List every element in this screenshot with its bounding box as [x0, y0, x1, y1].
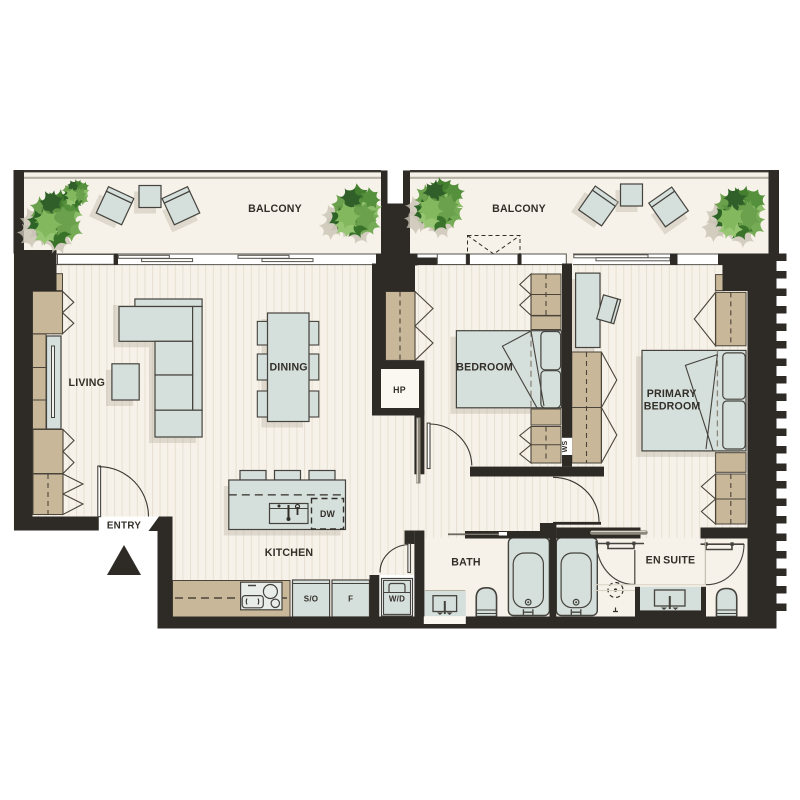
svg-text:W/D: W/D — [389, 595, 405, 604]
svg-text:PRIMARY: PRIMARY — [647, 388, 697, 400]
svg-text:F: F — [348, 595, 353, 604]
svg-text:LIVING: LIVING — [69, 377, 106, 389]
svg-text:BEDROOM: BEDROOM — [456, 361, 513, 373]
svg-text:KITCHEN: KITCHEN — [265, 547, 313, 559]
svg-text:WS: WS — [562, 440, 569, 452]
svg-text:DINING: DINING — [269, 362, 307, 374]
svg-text:EN SUITE: EN SUITE — [646, 555, 696, 567]
svg-text:BALCONY: BALCONY — [248, 203, 302, 215]
svg-text:HP: HP — [393, 385, 406, 395]
svg-text:BATH: BATH — [451, 557, 480, 569]
svg-text:BALCONY: BALCONY — [492, 203, 546, 215]
svg-text:ENTRY: ENTRY — [107, 521, 142, 532]
svg-text:BEDROOM: BEDROOM — [644, 401, 701, 413]
svg-text:S/O: S/O — [304, 595, 318, 604]
svg-text:DW: DW — [320, 509, 336, 519]
